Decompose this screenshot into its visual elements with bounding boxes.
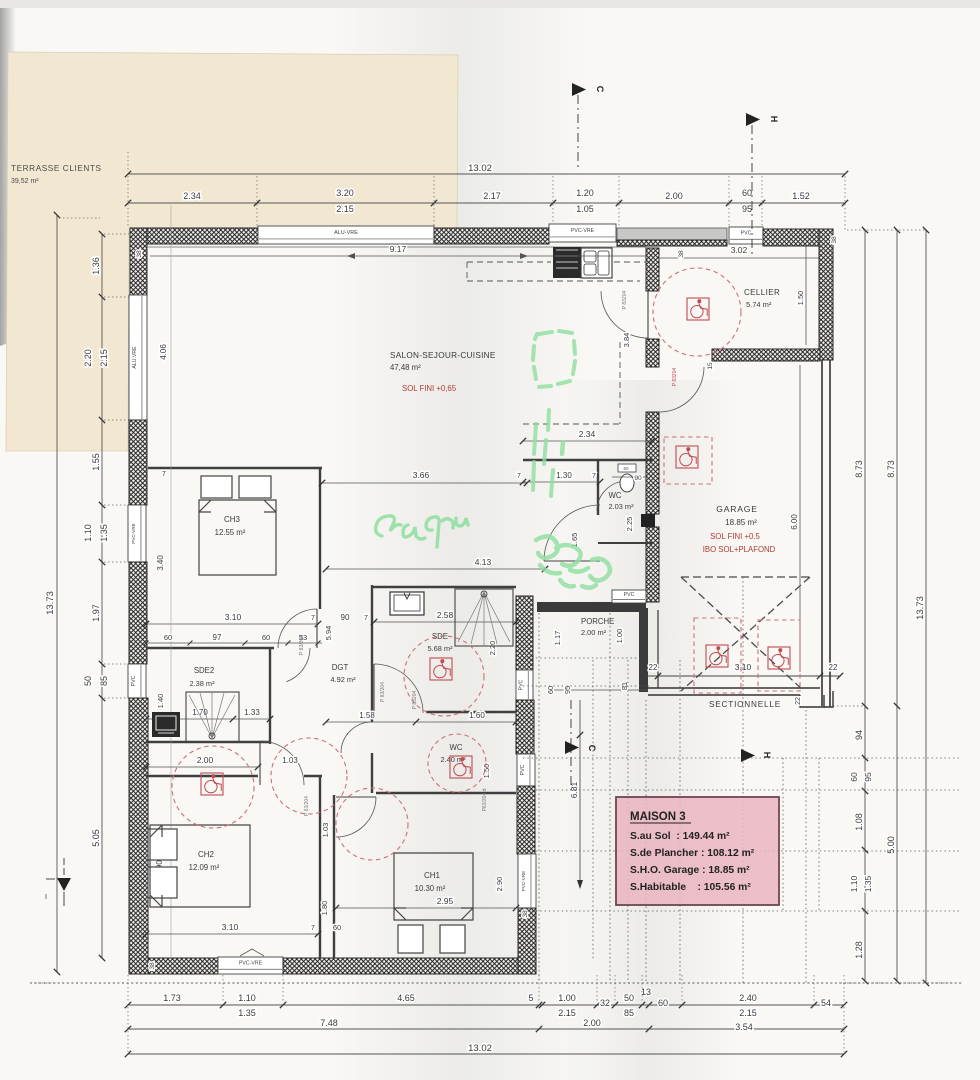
svg-text:7: 7 [364,615,368,622]
svg-text:1.55: 1.55 [91,453,101,471]
svg-text:2.40: 2.40 [739,993,757,1003]
svg-text:1.33: 1.33 [244,708,260,717]
svg-text:13: 13 [641,987,651,997]
svg-text:SDE2: SDE2 [194,666,214,675]
svg-text:1.20: 1.20 [576,188,594,198]
svg-text:85: 85 [624,1008,634,1018]
svg-text:1.40: 1.40 [156,694,165,709]
svg-text:PVC: PVC [131,675,137,686]
svg-text:1.35: 1.35 [99,524,109,542]
svg-text:GARAGE: GARAGE [716,504,758,514]
svg-text:60: 60 [742,188,752,198]
svg-text:90: 90 [634,475,642,482]
svg-text:2.15: 2.15 [336,204,354,214]
svg-text:13.02: 13.02 [468,1043,492,1054]
svg-text:38: 38 [831,236,838,244]
svg-text:7: 7 [517,473,521,480]
svg-text:47,48 m²: 47,48 m² [390,363,421,372]
svg-text:S.de Plancher : 108.12 m²: S.de Plancher : 108.12 m² [630,848,755,859]
svg-text:1.50: 1.50 [482,764,491,779]
svg-text:CH1: CH1 [424,871,441,880]
svg-text:2.34: 2.34 [183,191,201,201]
svg-text:SOL FINI +0.5: SOL FINI +0.5 [710,532,760,541]
svg-text:95: 95 [563,686,572,694]
svg-text:WC: WC [609,491,622,500]
svg-text:39,52 m²: 39,52 m² [11,178,39,185]
svg-text:60: 60 [546,686,555,694]
svg-text:ALU-VRE: ALU-VRE [334,230,358,236]
svg-text:PVC-VRE: PVC-VRE [521,871,526,891]
svg-text:85: 85 [99,676,109,686]
svg-text:3.02: 3.02 [731,245,748,255]
svg-text:WC: WC [450,743,463,752]
svg-text:5.74 m²: 5.74 m² [746,300,772,309]
svg-text:60: 60 [658,998,668,1008]
svg-text:3.20: 3.20 [336,188,354,198]
svg-text:CELLIER: CELLIER [744,288,780,297]
svg-text:2.00 m²: 2.00 m² [581,628,607,637]
svg-text:1.30: 1.30 [556,471,572,480]
svg-text:94: 94 [854,730,864,740]
svg-text:1.36: 1.36 [91,257,101,275]
svg-text:PVC: PVC [741,231,752,237]
svg-text:7.48: 7.48 [320,1018,338,1028]
svg-text:TERRASSE CLIENTS: TERRASSE CLIENTS [11,164,102,173]
svg-text:3.10: 3.10 [222,922,239,932]
svg-text:2.15: 2.15 [739,1008,757,1018]
svg-text:95: 95 [742,204,752,214]
svg-text:97: 97 [213,633,222,642]
svg-text:7: 7 [162,471,166,478]
svg-text:38: 38 [136,250,143,258]
svg-text:4.13: 4.13 [475,557,492,567]
svg-text:2.20: 2.20 [83,349,93,367]
svg-text:5.94: 5.94 [324,626,333,641]
svg-text:13.73: 13.73 [45,591,56,615]
svg-text:PVC: PVC [518,679,524,690]
svg-text:2.95: 2.95 [437,896,454,906]
svg-text:7: 7 [311,615,315,622]
svg-text:38: 38 [678,250,685,258]
svg-text:PVC: PVC [624,592,635,598]
svg-text:PVC-VRE: PVC-VRE [239,961,263,967]
svg-text:4.65: 4.65 [397,993,415,1003]
svg-text:P63/204 d: P63/204 d [482,788,488,811]
svg-text:2.00: 2.00 [197,755,214,765]
svg-text:S.au Sol : 149.44 m²: S.au Sol : 149.44 m² [630,831,730,842]
svg-text:22: 22 [649,663,658,672]
svg-text:PVC-VRE: PVC-VRE [571,228,595,234]
svg-text:3.66: 3.66 [413,470,430,480]
svg-text:50: 50 [83,676,93,686]
svg-text:1.03: 1.03 [321,823,330,838]
svg-text:5.68 m²: 5.68 m² [427,644,453,653]
svg-text:1.52: 1.52 [792,191,810,201]
svg-text:1.10: 1.10 [238,993,256,1003]
svg-text:95: 95 [863,772,873,782]
svg-text:12.09 m²: 12.09 m² [189,863,220,872]
svg-text:IBO SOL+PLAFOND: IBO SOL+PLAFOND [703,545,776,554]
svg-text:P 63/204: P 63/204 [304,796,310,816]
svg-text:4.92 m²: 4.92 m² [330,675,356,684]
svg-text:2.17: 2.17 [483,191,501,201]
svg-text:PVC: PVC [520,764,526,775]
svg-text:1.10: 1.10 [83,524,93,542]
svg-text:1.28: 1.28 [854,941,864,959]
svg-text:1.03: 1.03 [282,756,298,765]
svg-text:2.34: 2.34 [579,429,596,439]
svg-text:SALON-SEJOUR-CUISINE: SALON-SEJOUR-CUISINE [390,351,496,360]
svg-text:I: I [45,894,47,901]
svg-text:8.73: 8.73 [886,460,896,478]
svg-text:22: 22 [829,663,838,672]
svg-text:PORCHE: PORCHE [581,617,614,626]
svg-text:2.25: 2.25 [625,517,634,532]
svg-text:1.60: 1.60 [469,711,485,720]
svg-text:9.17: 9.17 [390,244,407,254]
svg-text:4.06: 4.06 [159,344,168,360]
svg-text:1.00: 1.00 [558,993,576,1003]
svg-text:ALU.VRE: ALU.VRE [132,346,138,369]
svg-text:5: 5 [528,993,533,1003]
svg-text:P 83204: P 83204 [412,691,418,710]
svg-text:1.73: 1.73 [163,993,181,1003]
svg-text:2.15: 2.15 [558,1008,576,1018]
svg-text:P 83/204: P 83/204 [299,635,305,655]
svg-text:32: 32 [600,998,610,1008]
svg-text:8.73: 8.73 [854,460,864,478]
svg-text:13.73: 13.73 [915,596,926,620]
svg-text:15: 15 [707,362,714,370]
svg-text:C: C [595,86,605,93]
svg-text:2.20: 2.20 [488,641,497,656]
svg-text:2.90: 2.90 [495,877,504,892]
svg-text:13.02: 13.02 [468,163,492,174]
svg-text:2.38 m²: 2.38 m² [189,679,215,688]
svg-text:6.00: 6.00 [790,514,799,530]
svg-text:3.54: 3.54 [735,1022,753,1032]
svg-text:S.H.O. Garage : 18.85 m²: S.H.O. Garage : 18.85 m² [630,865,750,876]
svg-text:1.05: 1.05 [576,204,594,214]
svg-text:7: 7 [592,473,596,480]
svg-text:90: 90 [341,613,350,622]
svg-text:1.17: 1.17 [553,631,562,646]
svg-text:2.58: 2.58 [437,610,454,620]
svg-text:38: 38 [149,962,156,970]
svg-text:50: 50 [624,993,634,1003]
svg-text:3.84: 3.84 [622,333,631,348]
svg-text:1.50: 1.50 [796,291,805,306]
svg-text:1.97: 1.97 [91,604,101,622]
svg-text:P 83204: P 83204 [622,291,628,310]
svg-text:5.00: 5.00 [886,836,896,854]
svg-text:2.00: 2.00 [583,1018,601,1028]
svg-text:60: 60 [164,633,172,642]
svg-text:CH3: CH3 [224,515,241,524]
svg-text:SECTIONNELLE: SECTIONNELLE [709,700,781,709]
svg-text:H: H [769,116,779,123]
svg-text:P 83204: P 83204 [672,368,678,387]
svg-text:3.10: 3.10 [225,612,242,622]
svg-text:1.35: 1.35 [238,1008,256,1018]
svg-text:1.35: 1.35 [863,875,873,892]
svg-text:22: 22 [795,697,802,705]
svg-text:2.00: 2.00 [665,191,683,201]
svg-text:60: 60 [849,772,859,782]
svg-text:S.Habitable : 105.56 m²: S.Habitable : 105.56 m² [630,882,751,893]
svg-text:2.03 m²: 2.03 m² [608,502,634,511]
svg-text:2.15: 2.15 [99,349,109,367]
svg-text:12.55 m²: 12.55 m² [215,528,246,537]
svg-text:18.85 m²: 18.85 m² [725,518,757,527]
svg-text:C: C [587,745,597,752]
svg-text:H: H [762,752,772,759]
svg-text:P 83/204: P 83/204 [380,682,386,702]
svg-text:1.08: 1.08 [854,813,864,831]
svg-text:3.40: 3.40 [156,555,165,571]
svg-text:1.80: 1.80 [320,901,329,916]
svg-text:1.58: 1.58 [359,711,375,720]
svg-text:60: 60 [262,633,270,642]
svg-text:60: 60 [333,923,341,932]
svg-text:5.05: 5.05 [91,829,101,847]
svg-text:7: 7 [311,925,315,932]
svg-text:PVC-VRE: PVC-VRE [131,523,136,543]
svg-text:1.10: 1.10 [849,875,859,892]
svg-text:60: 60 [623,466,629,471]
svg-text:1.00: 1.00 [615,629,624,644]
svg-text:DGT: DGT [332,663,349,672]
svg-text:SOL FINI +0,65: SOL FINI +0,65 [402,384,457,393]
svg-text:10.30 m²: 10.30 m² [415,884,446,893]
svg-text:MAISON 3: MAISON 3 [630,811,686,823]
svg-text:54: 54 [821,998,831,1008]
svg-text:CH2: CH2 [198,850,215,859]
